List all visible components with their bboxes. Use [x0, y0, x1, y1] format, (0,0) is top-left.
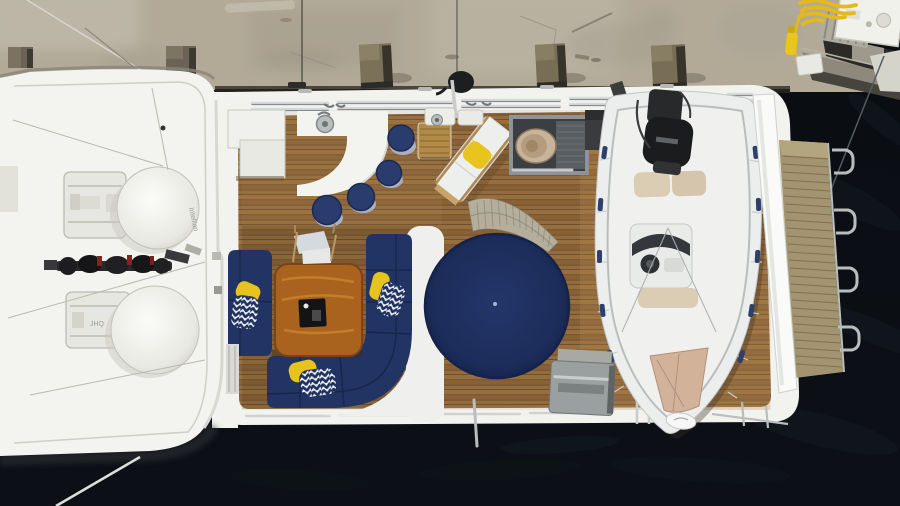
svg-text:JHQ: JHQ: [90, 321, 105, 328]
